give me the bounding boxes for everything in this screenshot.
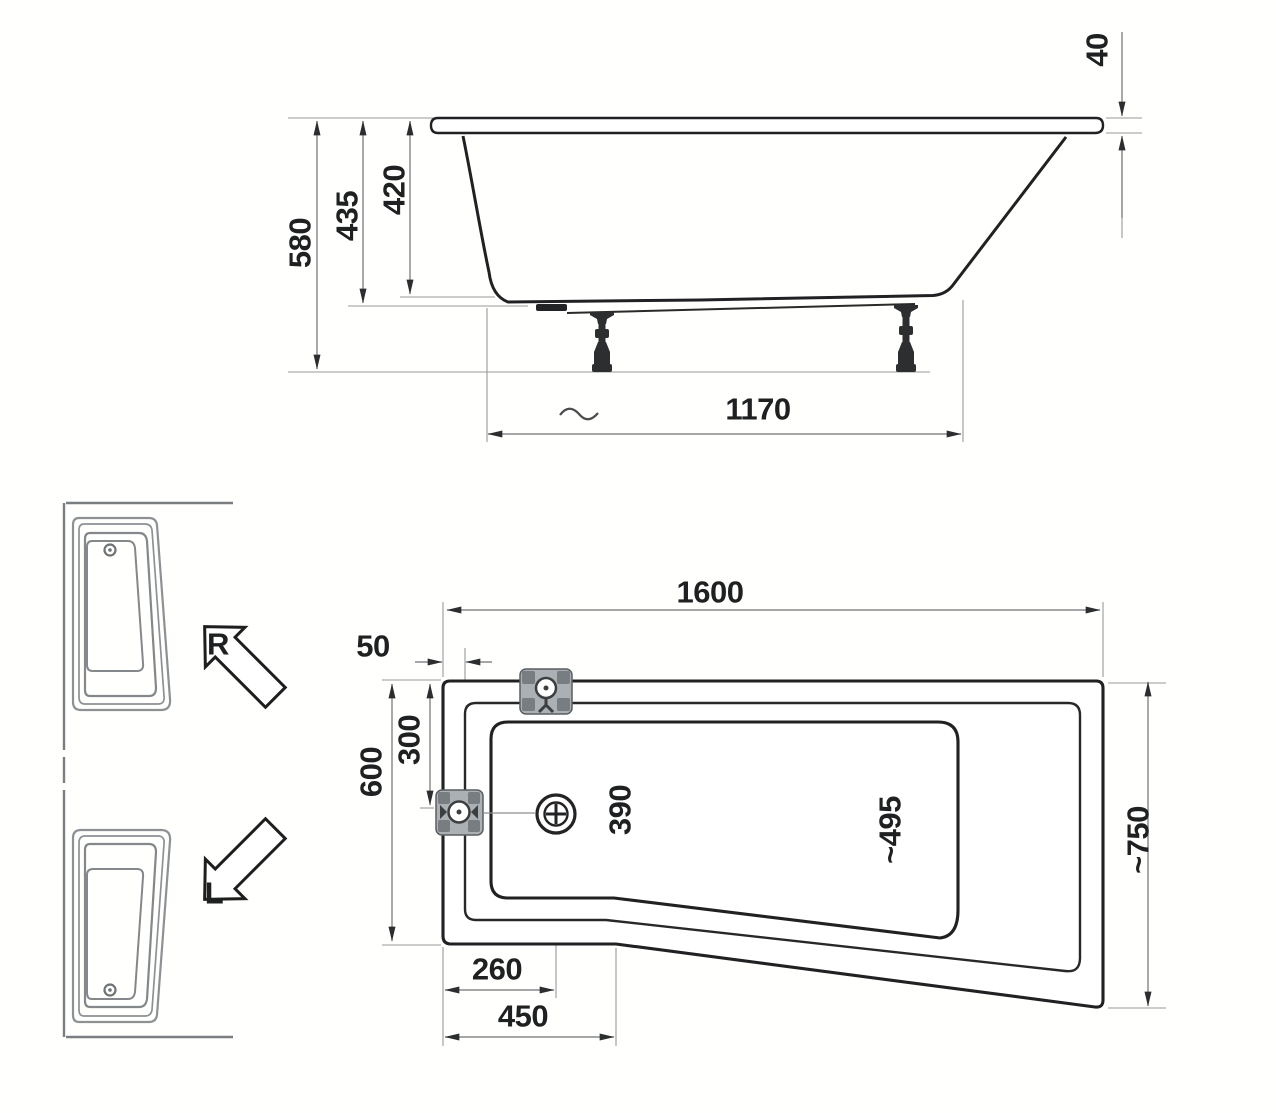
left-variant-label: L (205, 876, 223, 911)
right-variant-label: R (207, 627, 229, 662)
side-extension-lines (288, 118, 1142, 442)
plan-outer-outline (443, 681, 1103, 1007)
dim-rim-thickness: 40 (1080, 33, 1115, 66)
variant-right-thumbnail: R (64, 503, 295, 770)
dim-inner-depth: 420 (377, 165, 412, 215)
dim-basin-width-head-end: ~495 (873, 796, 908, 864)
side-dimension-lines (317, 32, 1122, 434)
support-foot-left (590, 312, 614, 372)
right-variant-arrow-icon (185, 607, 295, 717)
drain-icon (537, 795, 575, 833)
support-rail (567, 304, 915, 313)
dim-base-length: 1170 (725, 392, 790, 427)
plan-view: 1600 50 600 300 390 ~495 ~750 260 450 (354, 575, 1167, 1047)
dim-rim-offset: 50 (356, 629, 389, 664)
dim-drain-offset: 260 (472, 952, 522, 987)
overflow-fixture-top (520, 669, 572, 714)
support-foot-right (894, 305, 918, 372)
left-variant-arrow-icon (185, 809, 295, 919)
technical-drawing-canvas: 580 435 420 40 1170 (0, 0, 1276, 1113)
approx-squiggle-icon (560, 409, 598, 420)
side-rim-profile (431, 118, 1103, 133)
dim-taper-start: 450 (498, 999, 548, 1034)
overflow-fixture-side (436, 790, 483, 835)
dim-basin-width-drain-end: 390 (603, 785, 638, 835)
dim-overall-height: 580 (283, 218, 318, 268)
dim-shell-height: 435 (330, 191, 365, 241)
dim-wide-end-width: ~750 (1121, 806, 1156, 874)
dim-narrow-end-width: 600 (354, 747, 389, 797)
dim-overflow-offset: 300 (392, 715, 427, 765)
variant-left-thumbnail: L (64, 770, 295, 1037)
dim-overall-length: 1600 (677, 575, 744, 610)
technical-drawing-page: 580 435 420 40 1170 (0, 0, 1276, 1113)
side-view: 580 435 420 40 1170 (283, 32, 1143, 442)
side-shell-outline (463, 136, 1066, 302)
waste-outlet (536, 304, 567, 311)
